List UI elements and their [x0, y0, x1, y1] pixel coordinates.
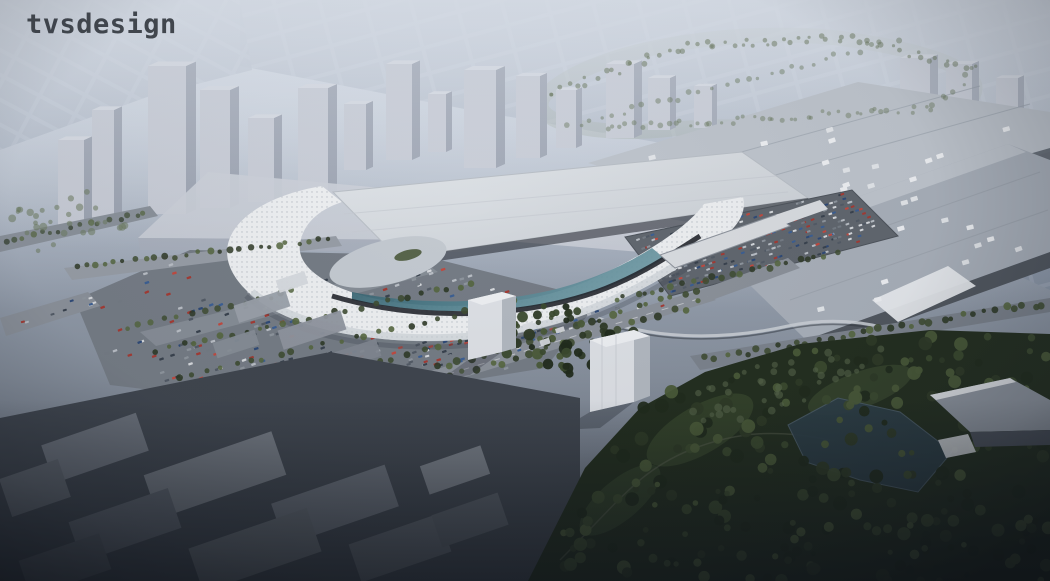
aerial-rendering — [0, 0, 1050, 581]
tvsdesign-logo: tvsdesign — [26, 9, 177, 40]
rendering-canvas: tvsdesign — [0, 0, 1050, 581]
vignette — [0, 0, 1050, 581]
